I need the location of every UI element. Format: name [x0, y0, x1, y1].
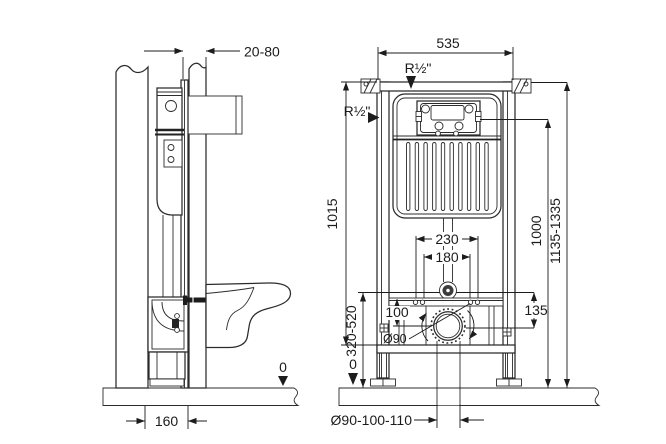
flush-plate-panel	[416, 101, 481, 136]
dim-inlet-outlet: 135	[524, 302, 548, 318]
toilet-bowl	[206, 283, 291, 348]
top-crossbar	[361, 79, 531, 93]
fill-valve	[166, 101, 177, 112]
label-inlet-top: R½"	[405, 60, 432, 76]
foot-side	[149, 352, 185, 386]
dim-wall-clearance: 20-80	[244, 44, 280, 60]
flush-elbow	[440, 282, 457, 299]
drain-pipe-floor-gap	[438, 389, 459, 406]
floor-zero-side: 0	[279, 359, 287, 375]
dim-frame-height: 1015	[324, 198, 340, 229]
dim-rail-outlet: 100	[385, 304, 409, 320]
label-inlet-side: R½"	[344, 103, 371, 119]
dim-bolts-outer: 230	[435, 231, 459, 247]
dim-outlet-diameter: Ø90	[383, 332, 407, 346]
back-wall	[116, 66, 148, 388]
rail-screw-left	[380, 324, 388, 332]
anchor-left	[361, 79, 380, 93]
floor-zero-side-marker	[278, 376, 288, 386]
floor-front	[339, 388, 599, 406]
feet	[371, 353, 522, 386]
side-view	[103, 63, 298, 405]
dimension-annotations: 20-80 160 0 535 R½" R½" 1015 320-520 0	[126, 35, 567, 429]
wc-outlet-stub	[172, 319, 179, 328]
lower-crossbar	[377, 345, 515, 353]
cistern-side	[155, 88, 184, 215]
rail-screw-right	[503, 328, 511, 336]
dim-drain-pipe: Ø90-100-110	[331, 412, 413, 428]
floor-zero-front-marker	[348, 373, 358, 385]
dim-plate-height: 1000	[528, 215, 544, 246]
dim-bolts-inner: 180	[435, 249, 459, 265]
cistern-front	[393, 94, 501, 218]
technical-drawing: 20-80 160 0 535 R½" R½" 1015 320-520 0	[0, 0, 666, 444]
dim-overall-height: 1135-1335	[547, 198, 563, 264]
dim-frame-depth: 160	[155, 413, 179, 429]
dim-outlet-height: 320-520	[343, 305, 359, 357]
floor-zero-front: 0	[349, 356, 357, 372]
drain-box-side	[148, 297, 188, 352]
flush-plate-shaft	[188, 96, 242, 134]
dim-frame-width: 535	[436, 35, 460, 51]
floor-side	[103, 388, 298, 406]
